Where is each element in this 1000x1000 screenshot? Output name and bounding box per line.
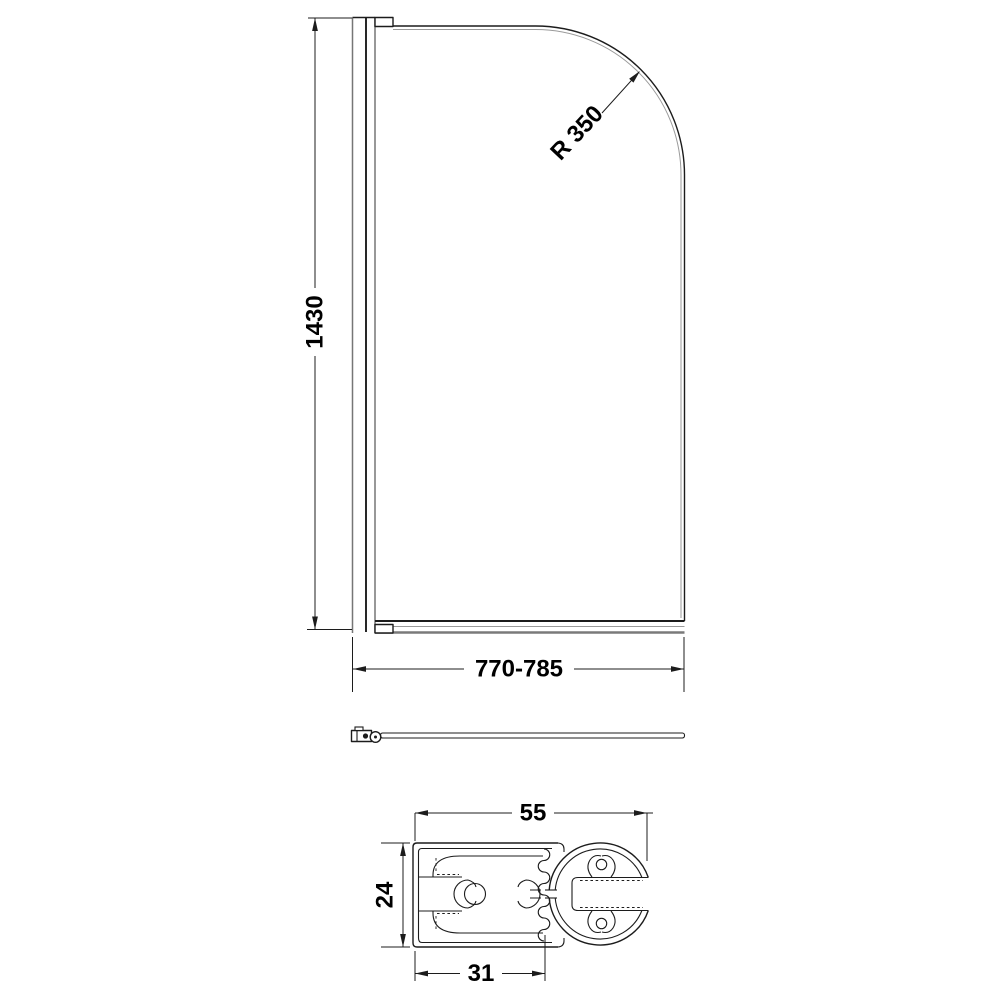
glass-slot-outline xyxy=(572,878,648,911)
pivot-center-dot xyxy=(374,736,377,739)
cavity-bottom-outline xyxy=(433,911,543,933)
profile-depth-label: 24 xyxy=(372,881,399,908)
section-view: 55 24 31 xyxy=(372,800,654,988)
boss-right-jaw xyxy=(518,880,541,908)
glass-outline xyxy=(393,26,685,621)
arrow-down-icon xyxy=(400,934,406,947)
channel-bottom-hook xyxy=(558,938,564,947)
glass-inner-edge xyxy=(393,29,681,618)
hinge-screw-dot xyxy=(363,733,368,738)
dimension-width-770-785: 770-785 xyxy=(353,637,685,692)
height-dimension-label: 1430 xyxy=(302,295,329,348)
glass-panel-edge xyxy=(381,733,685,738)
arrow-left-icon xyxy=(353,666,366,672)
screw-boss-circle xyxy=(465,884,486,905)
wall-profile-bar xyxy=(353,18,394,634)
arrow-down-icon xyxy=(312,617,318,630)
arrow-right-icon xyxy=(634,810,647,816)
arrow-left-icon xyxy=(415,810,428,816)
bath-screen-technical-drawing: 1430 R 350 770-785 xyxy=(0,0,1000,1000)
arrow-up-icon xyxy=(312,18,318,31)
arrow-up-icon xyxy=(400,843,406,856)
pivot-knuckle-profile xyxy=(549,843,648,945)
dimension-radius-r350: R 350 xyxy=(545,69,642,166)
lower-clip-circle xyxy=(596,918,606,928)
arrow-right-icon xyxy=(671,666,684,672)
front-view: 1430 R 350 770-785 xyxy=(302,18,685,693)
radius-dimension-label: R 350 xyxy=(545,100,608,165)
arrow-right-icon xyxy=(532,971,545,977)
channel-top-hook xyxy=(558,843,564,852)
width-dimension-label: 770-785 xyxy=(475,656,563,683)
overall-width-label: 55 xyxy=(520,800,547,827)
arrow-left-icon xyxy=(415,971,428,977)
wall-channel-profile xyxy=(413,843,564,947)
plan-view xyxy=(352,727,685,742)
dimension-overall-width-55: 55 xyxy=(415,800,653,862)
bottom-pivot-cap xyxy=(375,625,393,634)
technical-drawing-page: 1430 R 350 770-785 xyxy=(0,0,1000,1000)
cavity-top-outline xyxy=(433,856,543,877)
dimension-profile-depth-24: 24 xyxy=(372,843,411,947)
hinge-block xyxy=(352,731,372,742)
upper-clip-circle xyxy=(596,859,606,869)
hinge-tab xyxy=(355,727,363,731)
glass-panel xyxy=(375,26,685,633)
channel-width-label: 31 xyxy=(468,960,495,987)
top-pivot-cap xyxy=(375,18,393,27)
dimension-height-1430: 1430 xyxy=(302,18,353,630)
